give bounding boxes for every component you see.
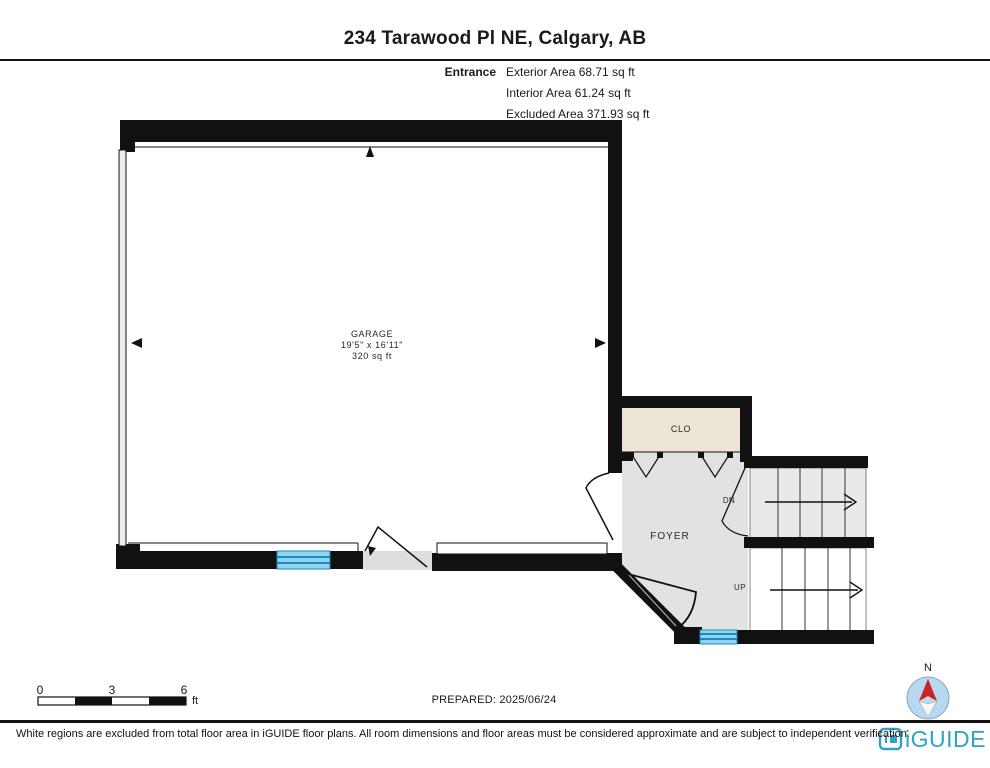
- stairs-down-treads: [750, 468, 866, 538]
- garage-to-foyer-door: [586, 473, 613, 540]
- foyer-window: [700, 630, 737, 644]
- garage-door-panel: [437, 543, 607, 554]
- floor-label: Entrance: [396, 65, 496, 79]
- scale-unit: ft: [192, 695, 198, 707]
- scale-tick-3: 3: [109, 683, 116, 697]
- garage-label: GARAGE: [351, 329, 393, 339]
- garage-area: 320 sq ft: [352, 351, 392, 361]
- scale-tick-6: 6: [181, 683, 188, 697]
- scale-tick-0: 0: [37, 683, 44, 697]
- garage-dimensions: 19'5" x 16'11": [341, 340, 403, 350]
- wall-marker-icons: [131, 146, 606, 348]
- floorplan-drawing: [0, 0, 990, 768]
- footer-disclaimer: White regions are excluded from total fl…: [16, 728, 910, 740]
- floorplan-page: 234 Tarawood Pl NE, Calgary, AB Entrance…: [0, 0, 990, 768]
- footer-divider: [0, 720, 990, 723]
- exterior-area: Exterior Area 68.71 sq ft: [506, 65, 635, 79]
- scale-bar: [38, 697, 186, 705]
- header-divider: [0, 59, 990, 61]
- stairs-up-label: UP: [734, 583, 746, 592]
- interior-area: Interior Area 61.24 sq ft: [506, 86, 631, 100]
- iguide-brand-text: iGUIDE: [905, 726, 986, 753]
- garage-side-door: [363, 527, 432, 570]
- stairs-down-label: DN: [723, 496, 735, 505]
- excluded-area: Excluded Area 371.93 sq ft: [506, 107, 649, 121]
- foyer-label: FOYER: [650, 531, 689, 542]
- compass-north-label: N: [924, 662, 932, 674]
- garage-overhead-door: [119, 150, 126, 546]
- prepared-date: PREPARED: 2025/06/24: [432, 694, 557, 706]
- foyer-floor: [616, 452, 748, 632]
- page-title: 234 Tarawood Pl NE, Calgary, AB: [344, 28, 647, 50]
- garage-window: [277, 551, 330, 569]
- compass-icon: [907, 677, 949, 719]
- closet-label: CLO: [671, 424, 691, 434]
